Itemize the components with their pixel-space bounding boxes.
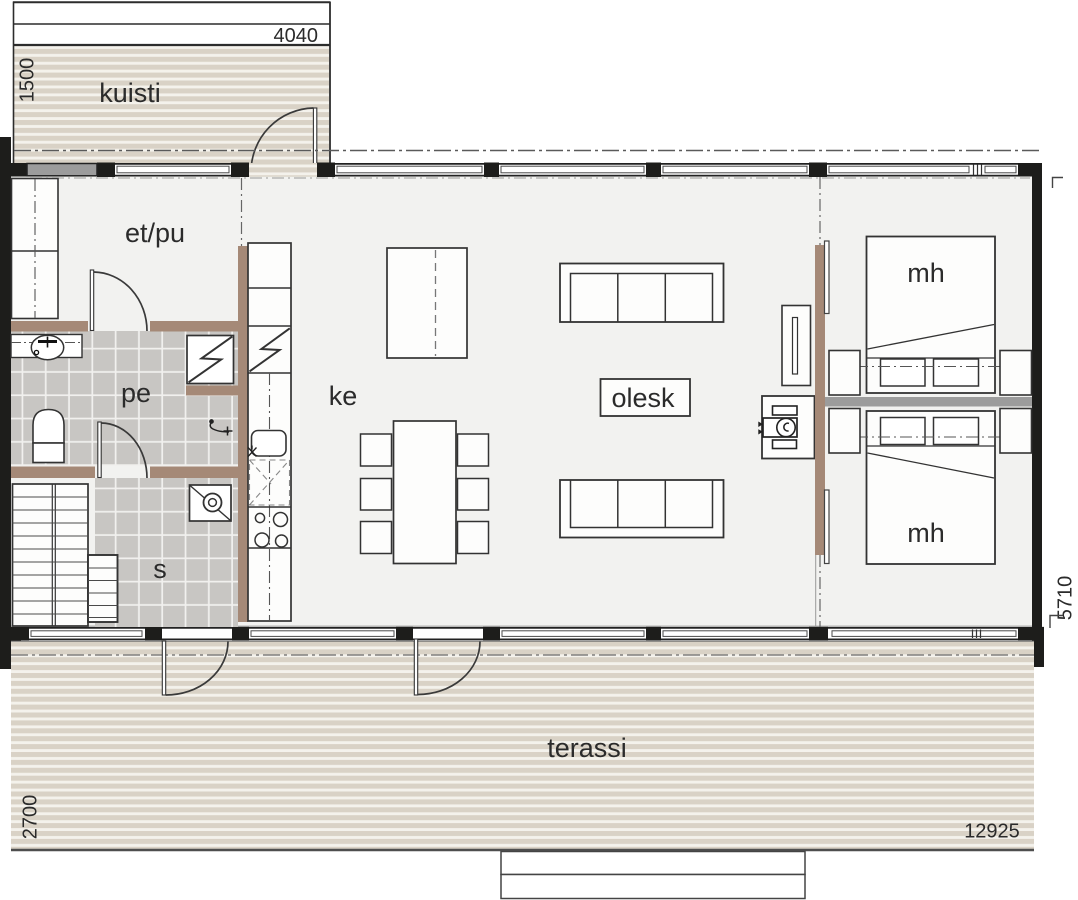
svg-text:olesk: olesk bbox=[611, 383, 675, 413]
svg-text:mh: mh bbox=[907, 518, 945, 548]
svg-text:ke: ke bbox=[329, 381, 358, 411]
svg-text:2700: 2700 bbox=[20, 795, 42, 840]
svg-text:s: s bbox=[153, 554, 167, 584]
svg-text:12925: 12925 bbox=[964, 821, 1020, 843]
svg-text:5710: 5710 bbox=[1055, 576, 1077, 621]
svg-text:terassi: terassi bbox=[547, 733, 627, 763]
svg-text:4040: 4040 bbox=[274, 25, 319, 47]
svg-text:1500: 1500 bbox=[17, 58, 39, 103]
svg-text:mh: mh bbox=[907, 258, 945, 288]
svg-text:et/pu: et/pu bbox=[125, 218, 185, 248]
svg-text:kuisti: kuisti bbox=[99, 78, 161, 108]
svg-text:pe: pe bbox=[121, 378, 151, 408]
